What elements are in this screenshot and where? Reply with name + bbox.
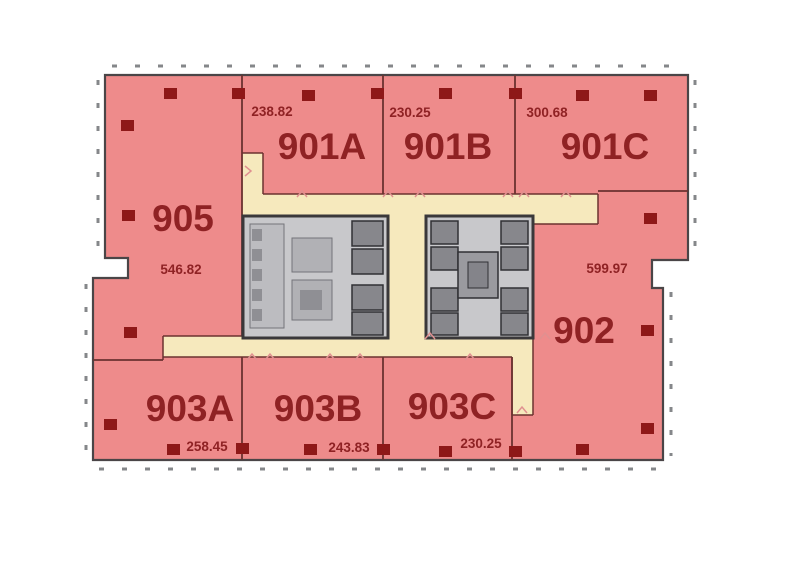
unit-905-label: 905 [152,198,214,239]
unit-901A-area: 238.82 [251,104,292,119]
floor-plan-image: 905 546.82 901A 238.82 901B 230.25 901C … [0,0,800,564]
unit-903C-label: 903C [408,386,496,427]
unit-903B-area: 243.83 [328,440,370,455]
unit-901A-label: 901A [278,126,366,167]
unit-903B-label: 903B [274,388,362,429]
core-left [243,216,388,338]
unit-901C-label: 901C [561,126,649,167]
core-right [426,216,533,338]
unit-902-area: 599.97 [586,261,627,276]
unit-901C-area: 300.68 [526,105,568,120]
unit-902-label: 902 [553,310,615,351]
unit-905-area: 546.82 [160,262,201,277]
unit-901B-label: 901B [404,126,492,167]
unit-903C-area: 230.25 [460,436,502,451]
unit-901B-area: 230.25 [389,105,431,120]
unit-903A-area: 258.45 [186,439,228,454]
floor-plan-svg: 905 546.82 901A 238.82 901B 230.25 901C … [0,0,800,564]
unit-903A-label: 903A [146,388,234,429]
